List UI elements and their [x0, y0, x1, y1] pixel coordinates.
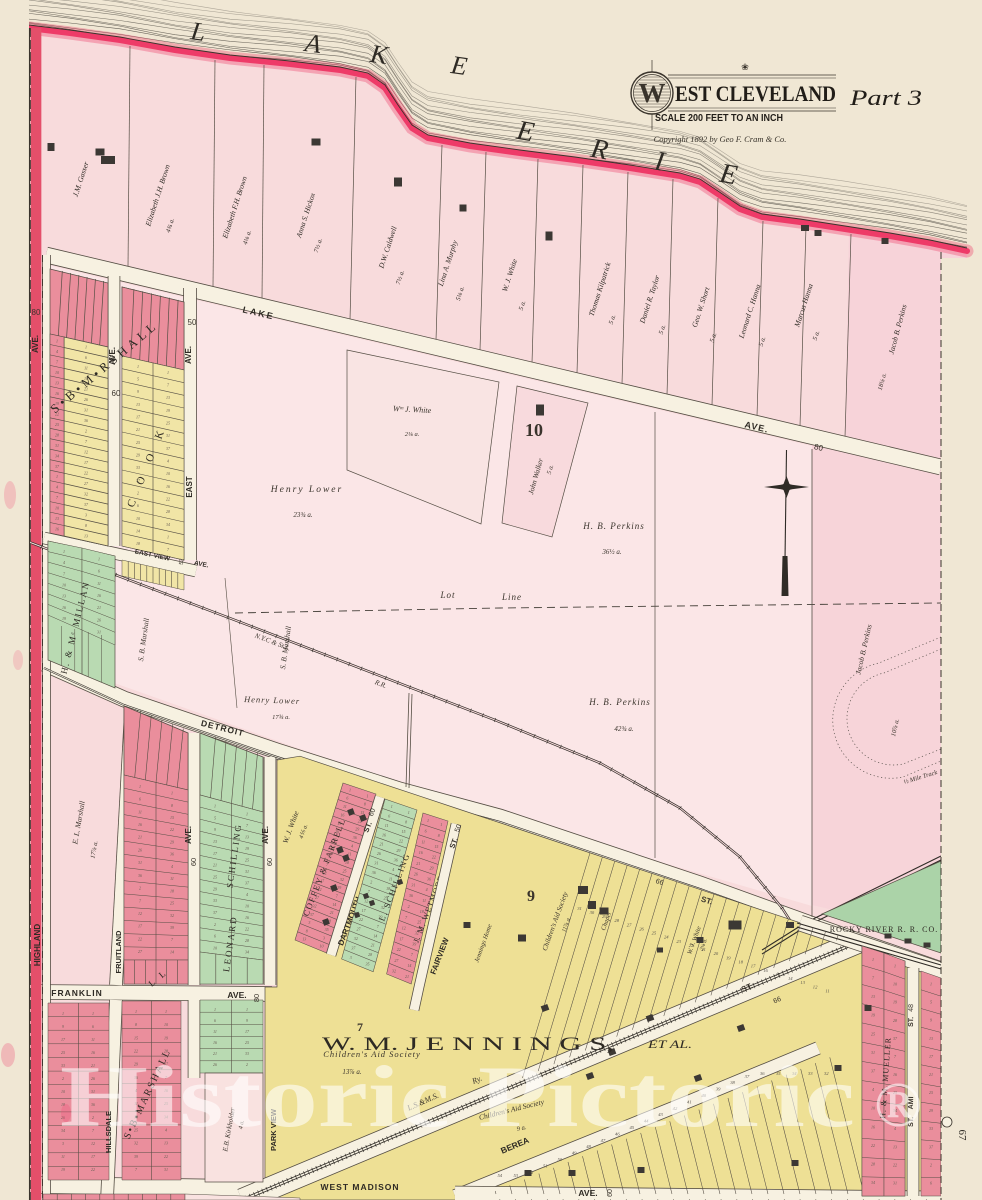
svg-text:6: 6: [425, 829, 427, 834]
svg-text:29: 29: [213, 886, 217, 891]
svg-text:16: 16: [55, 526, 59, 531]
svg-text:22: 22: [397, 947, 401, 952]
svg-text:4: 4: [167, 459, 169, 464]
svg-text:34: 34: [871, 1180, 875, 1185]
svg-text:3: 3: [308, 920, 310, 925]
svg-text:34: 34: [245, 950, 249, 955]
svg-text:29: 29: [355, 827, 359, 832]
svg-text:5: 5: [137, 377, 139, 382]
svg-text:28: 28: [245, 938, 249, 943]
svg-text:6: 6: [214, 1018, 216, 1023]
svg-text:9: 9: [62, 1024, 64, 1029]
svg-text:15: 15: [360, 810, 364, 815]
svg-text:22: 22: [164, 1154, 168, 1159]
svg-text:21: 21: [138, 835, 142, 840]
svg-text:18: 18: [738, 959, 743, 964]
svg-text:36: 36: [138, 873, 142, 878]
svg-text:25: 25: [343, 868, 347, 873]
svg-text:1: 1: [85, 345, 87, 350]
svg-text:1: 1: [56, 474, 58, 479]
svg-text:6: 6: [388, 813, 390, 818]
svg-text:31: 31: [138, 860, 142, 865]
svg-text:Part 3: Part 3: [849, 85, 922, 110]
svg-text:4: 4: [351, 843, 353, 848]
svg-text:60: 60: [607, 1189, 614, 1197]
svg-text:21: 21: [405, 974, 409, 979]
svg-text:21: 21: [136, 427, 140, 432]
svg-text:25: 25: [245, 857, 249, 862]
svg-text:26: 26: [97, 617, 101, 622]
svg-text:60: 60: [189, 858, 198, 866]
svg-text:1: 1: [214, 1007, 216, 1012]
svg-text:®: ®: [874, 1069, 922, 1140]
svg-text:1: 1: [246, 1007, 248, 1012]
svg-text:8: 8: [405, 819, 407, 824]
svg-text:6: 6: [346, 796, 348, 801]
svg-text:34: 34: [166, 522, 170, 527]
svg-text:AVE.: AVE.: [578, 1188, 597, 1198]
svg-text:2⅛ a.: 2⅛ a.: [405, 431, 420, 438]
svg-text:1: 1: [391, 804, 393, 809]
svg-text:10: 10: [62, 583, 66, 588]
svg-text:28: 28: [368, 952, 372, 957]
svg-text:7: 7: [357, 1020, 363, 1034]
svg-text:36: 36: [170, 852, 174, 857]
svg-text:39: 39: [337, 885, 341, 890]
svg-text:13: 13: [166, 395, 170, 400]
svg-text:21: 21: [330, 910, 334, 915]
svg-text:16: 16: [763, 968, 768, 973]
svg-text:1: 1: [440, 822, 442, 827]
svg-text:11: 11: [385, 823, 389, 828]
svg-text:13: 13: [929, 1036, 933, 1041]
svg-text:9: 9: [246, 1018, 248, 1023]
svg-text:31: 31: [871, 1050, 875, 1055]
svg-text:26: 26: [138, 847, 142, 852]
svg-text:EAST: EAST: [185, 476, 194, 497]
svg-text:1: 1: [349, 787, 351, 792]
svg-text:60: 60: [265, 858, 274, 866]
svg-text:11: 11: [138, 809, 142, 814]
svg-text:ROCKY RIVER R. R. CO.: ROCKY RIVER R. R. CO.: [830, 925, 939, 934]
svg-text:19: 19: [164, 1035, 168, 1040]
svg-text:16: 16: [245, 915, 249, 920]
svg-text:28: 28: [871, 1162, 875, 1167]
svg-text:13: 13: [245, 834, 249, 839]
svg-text:10: 10: [164, 1022, 168, 1027]
svg-text:13: 13: [800, 980, 805, 985]
svg-text:28: 28: [893, 1018, 897, 1023]
svg-text:5: 5: [930, 1000, 932, 1005]
svg-text:25: 25: [136, 440, 140, 445]
svg-text:ST.: ST.: [908, 1017, 915, 1027]
svg-text:21: 21: [97, 605, 101, 610]
svg-text:23¾ a.: 23¾ a.: [293, 511, 313, 519]
svg-text:26: 26: [414, 872, 418, 877]
svg-text:16: 16: [55, 391, 59, 396]
svg-text:12: 12: [813, 984, 818, 989]
svg-text:42¾ a.: 42¾ a.: [614, 725, 634, 733]
svg-text:25: 25: [245, 1040, 249, 1045]
svg-text:19: 19: [62, 616, 66, 621]
svg-text:4: 4: [426, 887, 428, 892]
svg-text:32: 32: [392, 969, 396, 974]
svg-text:6: 6: [214, 934, 216, 939]
svg-text:25: 25: [213, 875, 217, 880]
svg-text:H. B. Perkins: H. B. Perkins: [582, 521, 645, 531]
svg-text:12: 12: [364, 898, 368, 903]
svg-text:1: 1: [872, 957, 874, 962]
svg-text:13: 13: [62, 594, 66, 599]
svg-text:19: 19: [871, 1013, 875, 1018]
svg-text:22: 22: [245, 927, 249, 932]
svg-text:22: 22: [166, 497, 170, 502]
svg-text:3: 3: [350, 955, 352, 960]
svg-text:60: 60: [112, 389, 121, 398]
svg-text:25: 25: [871, 1031, 875, 1036]
svg-text:❀: ❀: [741, 62, 749, 72]
svg-text:15: 15: [776, 972, 781, 977]
svg-text:8: 8: [364, 802, 366, 807]
svg-text:13: 13: [871, 994, 875, 999]
svg-text:11: 11: [91, 1037, 95, 1042]
svg-text:13: 13: [302, 937, 306, 942]
svg-text:36: 36: [427, 876, 431, 881]
svg-text:31: 31: [577, 906, 582, 911]
svg-text:14: 14: [332, 902, 336, 907]
svg-text:2: 2: [139, 886, 141, 891]
svg-text:12: 12: [138, 911, 142, 916]
svg-text:1: 1: [165, 1009, 167, 1014]
svg-text:49: 49: [572, 1151, 577, 1156]
svg-text:16: 16: [138, 822, 142, 827]
svg-text:28: 28: [614, 918, 619, 923]
svg-text:22: 22: [432, 855, 436, 860]
svg-text:9: 9: [214, 827, 216, 832]
svg-text:15: 15: [170, 815, 174, 820]
svg-text:13: 13: [55, 516, 59, 521]
svg-text:18: 18: [136, 541, 140, 546]
svg-text:11: 11: [213, 1029, 217, 1034]
svg-text:1: 1: [930, 982, 932, 987]
svg-text:50: 50: [557, 1157, 562, 1162]
svg-text:4: 4: [56, 349, 58, 354]
svg-text:24: 24: [664, 935, 669, 940]
svg-text:26: 26: [639, 926, 644, 931]
svg-text:10: 10: [166, 471, 170, 476]
svg-text:17¾ a.: 17¾ a.: [272, 714, 290, 721]
svg-text:19: 19: [166, 408, 170, 413]
svg-text:FRUITLAND: FRUITLAND: [114, 930, 123, 973]
svg-text:29: 29: [170, 840, 174, 845]
svg-text:16: 16: [97, 593, 101, 598]
svg-text:13: 13: [136, 402, 140, 407]
svg-text:15: 15: [434, 844, 438, 849]
svg-text:17: 17: [751, 964, 756, 969]
svg-text:11: 11: [170, 876, 174, 881]
svg-text:50: 50: [188, 318, 197, 327]
svg-text:8: 8: [85, 523, 87, 528]
svg-text:AVE.: AVE.: [184, 826, 193, 844]
svg-text:29: 29: [929, 1108, 933, 1113]
svg-text:29: 29: [430, 866, 434, 871]
svg-text:6: 6: [98, 569, 100, 574]
svg-text:11: 11: [343, 804, 347, 809]
svg-text:35: 35: [325, 927, 329, 932]
svg-text:39: 39: [134, 1154, 138, 1159]
svg-text:53: 53: [513, 1173, 518, 1178]
svg-text:16: 16: [340, 812, 344, 817]
svg-text:3: 3: [85, 512, 87, 517]
svg-text:31: 31: [164, 1167, 168, 1172]
svg-text:36½ a.: 36½ a.: [601, 548, 622, 556]
svg-text:AVE.: AVE.: [261, 826, 270, 844]
svg-text:20: 20: [714, 951, 719, 956]
svg-text:30: 30: [590, 910, 595, 915]
svg-text:14: 14: [136, 529, 140, 534]
svg-text:32: 32: [84, 491, 88, 496]
svg-text:4: 4: [246, 892, 248, 897]
svg-text:80: 80: [32, 308, 41, 317]
svg-text:Line: Line: [501, 592, 522, 602]
svg-text:36: 36: [372, 870, 376, 875]
svg-text:14: 14: [788, 976, 793, 981]
svg-text:12: 12: [84, 450, 88, 455]
svg-text:25: 25: [55, 422, 59, 427]
svg-text:5: 5: [214, 815, 216, 820]
svg-text:16: 16: [419, 850, 423, 855]
svg-text:Copyright 1892 by Geo F. Cram: Copyright 1892 by Geo F. Cram & Co.: [654, 134, 787, 144]
svg-text:Henry Lower: Henry Lower: [243, 694, 300, 706]
svg-text:1: 1: [427, 818, 429, 823]
svg-text:33: 33: [213, 898, 217, 903]
svg-text:AVE.: AVE.: [31, 335, 40, 353]
svg-text:6: 6: [139, 797, 141, 802]
svg-text:AVE.: AVE.: [184, 346, 193, 364]
svg-text:52: 52: [179, 558, 186, 565]
svg-text:36: 36: [84, 418, 88, 423]
svg-text:14: 14: [373, 933, 377, 938]
svg-text:4: 4: [171, 864, 173, 869]
svg-text:8: 8: [438, 833, 440, 838]
svg-text:48: 48: [908, 1004, 915, 1012]
svg-text:23: 23: [676, 939, 681, 944]
svg-text:13: 13: [84, 533, 88, 538]
svg-text:16: 16: [382, 832, 386, 837]
svg-text:32: 32: [170, 913, 174, 918]
svg-text:6: 6: [85, 355, 87, 360]
svg-text:35: 35: [366, 962, 370, 967]
svg-text:11: 11: [422, 898, 426, 903]
svg-text:11: 11: [825, 988, 829, 993]
svg-text:AVE.: AVE.: [227, 990, 246, 1000]
svg-text:9: 9: [527, 888, 535, 905]
svg-text:22: 22: [84, 470, 88, 475]
svg-text:36: 36: [353, 835, 357, 840]
svg-text:Henry Lower: Henry Lower: [270, 485, 343, 495]
svg-text:1: 1: [137, 364, 139, 369]
svg-text:2: 2: [214, 922, 216, 927]
svg-text:19: 19: [245, 846, 249, 851]
svg-text:26: 26: [84, 397, 88, 402]
svg-text:WEST MADISON: WEST MADISON: [320, 1182, 399, 1192]
svg-text:9: 9: [930, 1018, 932, 1023]
svg-text:9: 9: [137, 389, 139, 394]
svg-text:32: 32: [340, 877, 344, 882]
svg-text:1: 1: [139, 784, 141, 789]
svg-text:FRANKLIN: FRANKLIN: [51, 988, 102, 998]
svg-text:32: 32: [354, 936, 358, 941]
svg-text:4: 4: [63, 560, 65, 565]
svg-text:1: 1: [98, 557, 100, 562]
svg-text:10: 10: [136, 516, 140, 521]
svg-text:1: 1: [63, 549, 65, 554]
svg-text:31: 31: [374, 861, 378, 866]
svg-text:31: 31: [411, 883, 415, 888]
svg-text:25: 25: [929, 1090, 933, 1095]
svg-text:80: 80: [252, 994, 261, 1002]
svg-text:25: 25: [170, 901, 174, 906]
svg-text:11: 11: [61, 1154, 65, 1159]
svg-text:67: 67: [956, 1130, 968, 1142]
svg-text:16: 16: [166, 484, 170, 489]
svg-text:10: 10: [525, 420, 543, 440]
svg-text:26: 26: [377, 851, 381, 856]
svg-text:EST CLEVELAND: EST CLEVELAND: [675, 81, 836, 106]
svg-text:34: 34: [55, 453, 59, 458]
svg-text:19: 19: [893, 1000, 897, 1005]
svg-text:22: 22: [359, 917, 363, 922]
svg-text:31: 31: [97, 629, 101, 634]
svg-text:16: 16: [62, 605, 66, 610]
svg-text:SCALE 200 FEET TO AN INCH: SCALE 200 FEET TO AN INCH: [655, 113, 783, 124]
svg-text:54: 54: [497, 1173, 502, 1178]
svg-text:10: 10: [213, 946, 217, 951]
svg-text:1: 1: [62, 1011, 64, 1016]
svg-text:25: 25: [652, 931, 657, 936]
svg-text:33: 33: [929, 1126, 933, 1131]
svg-text:14: 14: [170, 949, 174, 954]
svg-text:25: 25: [166, 421, 170, 426]
svg-text:2: 2: [85, 429, 87, 434]
svg-text:W: W: [639, 78, 666, 108]
svg-text:22: 22: [871, 1143, 875, 1148]
svg-text:10: 10: [893, 982, 897, 987]
svg-text:31: 31: [55, 443, 59, 448]
svg-text:51: 51: [543, 1163, 548, 1168]
svg-text:21: 21: [213, 863, 217, 868]
svg-text:39: 39: [170, 925, 174, 930]
svg-text:12: 12: [402, 926, 406, 931]
svg-text:1: 1: [92, 1011, 94, 1016]
svg-text:21: 21: [929, 1072, 933, 1077]
svg-text:19: 19: [726, 955, 731, 960]
svg-text:2: 2: [370, 880, 372, 885]
svg-text:10: 10: [55, 505, 59, 510]
svg-text:11: 11: [97, 581, 101, 586]
svg-text:22: 22: [170, 827, 174, 832]
svg-text:29: 29: [396, 848, 400, 853]
svg-text:10: 10: [320, 944, 324, 949]
svg-text:31: 31: [166, 433, 170, 438]
svg-text:1: 1: [167, 370, 169, 375]
svg-text:11: 11: [84, 366, 88, 371]
svg-text:10: 10: [245, 904, 249, 909]
svg-text:1: 1: [135, 1009, 137, 1014]
svg-text:13: 13: [55, 380, 59, 385]
svg-text:36: 36: [409, 893, 413, 898]
svg-text:Historic Pictoric: Historic Pictoric: [60, 1049, 855, 1146]
svg-text:8: 8: [306, 928, 308, 933]
svg-text:15: 15: [402, 829, 406, 834]
svg-text:6: 6: [92, 1024, 94, 1029]
svg-text:1: 1: [894, 964, 896, 969]
svg-text:19: 19: [61, 1167, 65, 1172]
svg-text:Lot: Lot: [439, 590, 455, 600]
svg-text:2: 2: [408, 904, 410, 909]
svg-text:31: 31: [84, 408, 88, 413]
svg-text:13: 13: [213, 839, 217, 844]
svg-text:H. B. Perkins: H. B. Perkins: [588, 697, 651, 707]
svg-text:36: 36: [394, 857, 398, 862]
svg-text:1: 1: [56, 339, 58, 344]
svg-text:1: 1: [171, 791, 173, 796]
svg-text:18: 18: [170, 888, 174, 893]
svg-text:21: 21: [416, 861, 420, 866]
svg-text:31: 31: [245, 869, 249, 874]
svg-text:31: 31: [893, 1181, 897, 1186]
svg-text:1: 1: [214, 803, 216, 808]
svg-text:29: 29: [136, 453, 140, 458]
svg-text:16: 16: [213, 1040, 217, 1045]
svg-text:11: 11: [421, 839, 425, 844]
svg-text:4: 4: [56, 485, 58, 490]
svg-text:22: 22: [893, 1162, 897, 1167]
svg-text:6: 6: [930, 1181, 932, 1186]
svg-text:27: 27: [627, 922, 632, 927]
svg-text:15: 15: [134, 1035, 138, 1040]
svg-text:28: 28: [55, 433, 59, 438]
svg-text:1: 1: [167, 535, 169, 540]
svg-text:8: 8: [171, 803, 173, 808]
svg-text:21: 21: [371, 943, 375, 948]
svg-text:2: 2: [930, 1162, 932, 1167]
svg-text:1: 1: [408, 810, 410, 815]
svg-text:1: 1: [246, 811, 248, 816]
svg-text:AVE.: AVE.: [108, 347, 117, 365]
svg-text:21: 21: [380, 842, 384, 847]
svg-text:1: 1: [367, 793, 369, 798]
svg-text:13: 13: [893, 1144, 897, 1149]
svg-text:28: 28: [166, 509, 170, 514]
svg-text:3: 3: [323, 935, 325, 940]
svg-text:22: 22: [91, 1167, 95, 1172]
svg-text:14: 14: [407, 963, 411, 968]
svg-text:8: 8: [135, 1022, 137, 1027]
svg-text:22: 22: [399, 838, 403, 843]
svg-text:22: 22: [138, 936, 142, 941]
svg-text:10: 10: [55, 370, 59, 375]
svg-text:HIGHLAND: HIGHLAND: [33, 924, 42, 966]
